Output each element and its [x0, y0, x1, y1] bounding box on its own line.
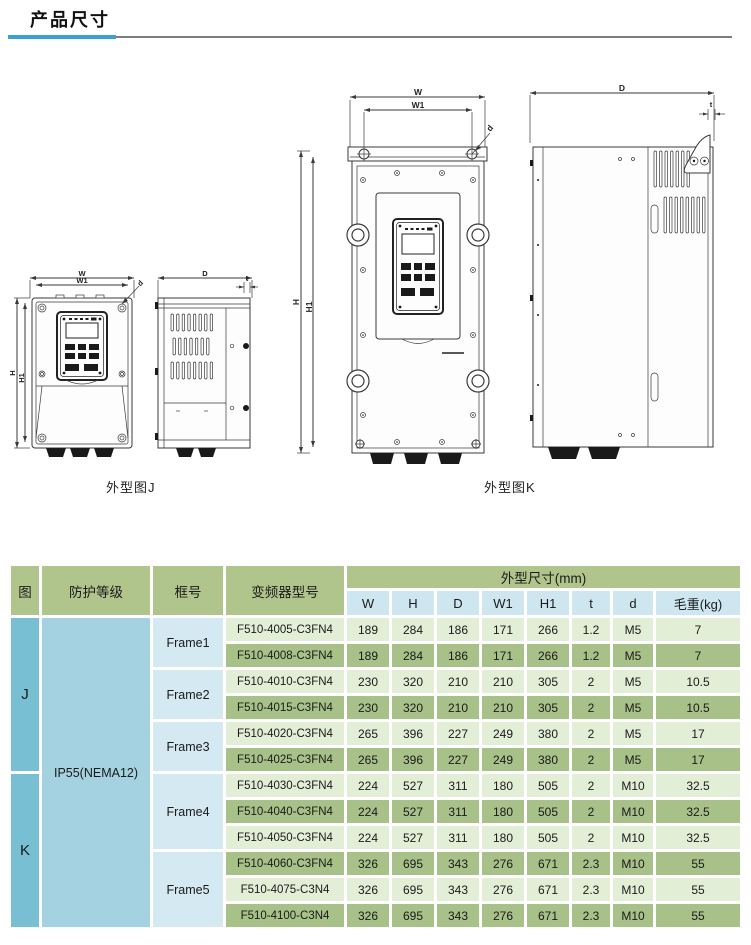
dim-value-cell: 171 [482, 644, 524, 667]
col-header-model: 变频器型号 [226, 566, 344, 615]
dim-value-cell: 343 [437, 852, 479, 875]
dim-value-cell: 311 [437, 774, 479, 797]
dim-value-cell: 505 [527, 826, 569, 849]
dim-value-cell: 2 [572, 748, 610, 771]
dim-value-cell: 320 [392, 670, 434, 693]
dim-value-cell: 55 [656, 878, 740, 901]
dim-value-cell: 305 [527, 670, 569, 693]
dim-value-cell: 505 [527, 800, 569, 823]
col-header-w1: W1 [482, 591, 524, 615]
frame-cell: Frame3 [153, 722, 223, 771]
dim-value-cell: 186 [437, 644, 479, 667]
dim-value-cell: 189 [347, 618, 389, 641]
dim-value-cell: 2 [572, 670, 610, 693]
dim-value-cell: M5 [613, 618, 653, 641]
dim-value-cell: 32.5 [656, 826, 740, 849]
keypad-panel [57, 312, 107, 380]
dim-value-cell: M5 [613, 722, 653, 745]
dim-value-cell: M5 [613, 644, 653, 667]
col-header-weight: 毛重(kg) [656, 591, 740, 615]
dim-value-cell: 396 [392, 748, 434, 771]
col-header-d-hole: d [613, 591, 653, 615]
dim-value-cell: M10 [613, 826, 653, 849]
dim-label-h: H [8, 370, 17, 375]
dim-value-cell: 2.3 [572, 878, 610, 901]
title-rule-accent [8, 35, 116, 39]
dim-value-cell: 695 [392, 852, 434, 875]
dim-value-cell: 7 [656, 618, 740, 641]
dim-value-cell: 276 [482, 852, 524, 875]
dim-value-cell: 55 [656, 904, 740, 927]
dim-value-cell: 311 [437, 826, 479, 849]
model-cell: F510-4075-C3N4 [226, 878, 344, 901]
dim-value-cell: 10.5 [656, 696, 740, 719]
dim-value-cell: 249 [482, 748, 524, 771]
col-header-h: H [392, 591, 434, 615]
dim-value-cell: 10.5 [656, 670, 740, 693]
figure-k-front-drawing: W W1 H H1 d [292, 85, 497, 480]
protection-cell: IP55(NEMA12) [42, 618, 150, 927]
dim-value-cell: 2 [572, 774, 610, 797]
title-rule-gray [8, 36, 732, 38]
dim-value-cell: 227 [437, 722, 479, 745]
dim-value-cell: 2 [572, 800, 610, 823]
dim-value-cell: 266 [527, 618, 569, 641]
title-rule [8, 35, 740, 41]
dim-label-h: H [292, 299, 301, 305]
frame-cell: Frame4 [153, 774, 223, 849]
dim-value-cell: 276 [482, 904, 524, 927]
dim-label-depth: D [202, 269, 208, 278]
dim-value-cell: 527 [392, 800, 434, 823]
dim-label-w1: W1 [412, 100, 425, 110]
dim-label-d-hole: d [135, 278, 145, 288]
dim-value-cell: 695 [392, 904, 434, 927]
dim-value-cell: 227 [437, 748, 479, 771]
dim-value-cell: 2.3 [572, 852, 610, 875]
figure-k-caption: 外型图K [484, 477, 536, 496]
dim-value-cell: 343 [437, 904, 479, 927]
outline-drawings: W W1 H H1 [0, 85, 751, 510]
figure-cell-k: K [11, 774, 39, 927]
dim-value-cell: 17 [656, 748, 740, 771]
dim-value-cell: 210 [437, 670, 479, 693]
dim-value-cell: M10 [613, 800, 653, 823]
dim-value-cell: 224 [347, 826, 389, 849]
dim-value-cell: 284 [392, 618, 434, 641]
dim-value-cell: 695 [392, 878, 434, 901]
dim-value-cell: 380 [527, 748, 569, 771]
dim-value-cell: 265 [347, 722, 389, 745]
col-header-frame: 框号 [153, 566, 223, 615]
model-cell: F510-4008-C3FN4 [226, 644, 344, 667]
dim-value-cell: 210 [437, 696, 479, 719]
model-cell: F510-4060-C3FN4 [226, 852, 344, 875]
model-cell: F510-4005-C3FN4 [226, 618, 344, 641]
dim-value-cell: 276 [482, 878, 524, 901]
figure-j-side-drawing: D t [146, 268, 264, 468]
frame-cell: Frame5 [153, 852, 223, 927]
dim-value-cell: 2 [572, 696, 610, 719]
model-cell: F510-4020-C3FN4 [226, 722, 344, 745]
dim-value-cell: 32.5 [656, 774, 740, 797]
table-row: J IP55(NEMA12) Frame1 F510-4005-C3FN4 18… [11, 618, 740, 641]
model-cell: F510-4050-C3FN4 [226, 826, 344, 849]
dim-value-cell: 17 [656, 722, 740, 745]
dim-label-depth: D [619, 85, 625, 93]
col-header-t: t [572, 591, 610, 615]
col-header-d: D [437, 591, 479, 615]
dim-value-cell: 266 [527, 644, 569, 667]
dim-value-cell: 32.5 [656, 800, 740, 823]
dim-value-cell: 527 [392, 826, 434, 849]
dim-label-w: W [414, 87, 423, 97]
dim-value-cell: M5 [613, 670, 653, 693]
dim-value-cell: 1.2 [572, 644, 610, 667]
dim-value-cell: 671 [527, 904, 569, 927]
dim-value-cell: 55 [656, 852, 740, 875]
dim-value-cell: 671 [527, 878, 569, 901]
dim-value-cell: 396 [392, 722, 434, 745]
dim-value-cell: 311 [437, 800, 479, 823]
dim-value-cell: 1.2 [572, 618, 610, 641]
dimensions-table: 图 防护等级 框号 变频器型号 外型尺寸(mm) W H D W1 H1 t d… [8, 563, 743, 930]
dim-label-d-hole: d [484, 123, 495, 133]
dim-value-cell: 305 [527, 696, 569, 719]
model-cell: F510-4015-C3FN4 [226, 696, 344, 719]
figure-k-side-drawing: D t [518, 85, 751, 480]
dim-value-cell: 180 [482, 826, 524, 849]
figure-cell-j: J [11, 618, 39, 771]
dim-value-cell: 343 [437, 878, 479, 901]
dim-value-cell: 210 [482, 696, 524, 719]
dim-value-cell: 224 [347, 774, 389, 797]
model-cell: F510-4030-C3FN4 [226, 774, 344, 797]
frame-cell: Frame1 [153, 618, 223, 667]
dim-value-cell: 249 [482, 722, 524, 745]
dim-label-w1: W1 [76, 276, 87, 285]
dim-value-cell: 326 [347, 904, 389, 927]
dim-value-cell: 180 [482, 800, 524, 823]
dim-value-cell: 527 [392, 774, 434, 797]
dim-value-cell: 380 [527, 722, 569, 745]
dim-label-t: t [710, 100, 713, 109]
dim-value-cell: 284 [392, 644, 434, 667]
frame-cell: Frame2 [153, 670, 223, 719]
model-cell: F510-4025-C3FN4 [226, 748, 344, 771]
dim-value-cell: 186 [437, 618, 479, 641]
figure-j-caption: 外型图J [106, 477, 156, 496]
model-cell: F510-4010-C3FN4 [226, 670, 344, 693]
col-header-h1: H1 [527, 591, 569, 615]
dim-value-cell: 326 [347, 878, 389, 901]
model-cell: F510-4040-C3FN4 [226, 800, 344, 823]
dim-value-cell: 210 [482, 670, 524, 693]
model-cell: F510-4100-C3N4 [226, 904, 344, 927]
col-header-w: W [347, 591, 389, 615]
dim-value-cell: 265 [347, 748, 389, 771]
dim-value-cell: 224 [347, 800, 389, 823]
dim-value-cell: 7 [656, 644, 740, 667]
manual-page: 产品尺寸 W W1 H H1 [0, 0, 751, 945]
col-header-figure: 图 [11, 566, 39, 615]
dim-value-cell: 320 [392, 696, 434, 719]
dim-value-cell: 230 [347, 670, 389, 693]
dim-value-cell: M5 [613, 696, 653, 719]
dim-value-cell: 505 [527, 774, 569, 797]
keypad-panel [393, 219, 443, 314]
col-header-dims-group: 外型尺寸(mm) [347, 566, 740, 588]
col-header-protection: 防护等级 [42, 566, 150, 615]
dim-label-h1: H1 [17, 373, 26, 383]
dim-value-cell: 326 [347, 852, 389, 875]
dim-value-cell: M5 [613, 748, 653, 771]
dim-value-cell: M10 [613, 878, 653, 901]
dim-value-cell: 230 [347, 696, 389, 719]
page-title: 产品尺寸 [30, 6, 740, 32]
dim-value-cell: M10 [613, 852, 653, 875]
dim-label-h1: H1 [304, 301, 314, 312]
dim-value-cell: M10 [613, 774, 653, 797]
dim-value-cell: 189 [347, 644, 389, 667]
figure-j-front-drawing: W W1 H H1 [8, 268, 148, 468]
dim-value-cell: 671 [527, 852, 569, 875]
dim-value-cell: M10 [613, 904, 653, 927]
dim-value-cell: 180 [482, 774, 524, 797]
dim-value-cell: 2 [572, 722, 610, 745]
dim-value-cell: 2 [572, 826, 610, 849]
dim-value-cell: 171 [482, 618, 524, 641]
dim-value-cell: 2.3 [572, 904, 610, 927]
title-block: 产品尺寸 [8, 6, 740, 41]
